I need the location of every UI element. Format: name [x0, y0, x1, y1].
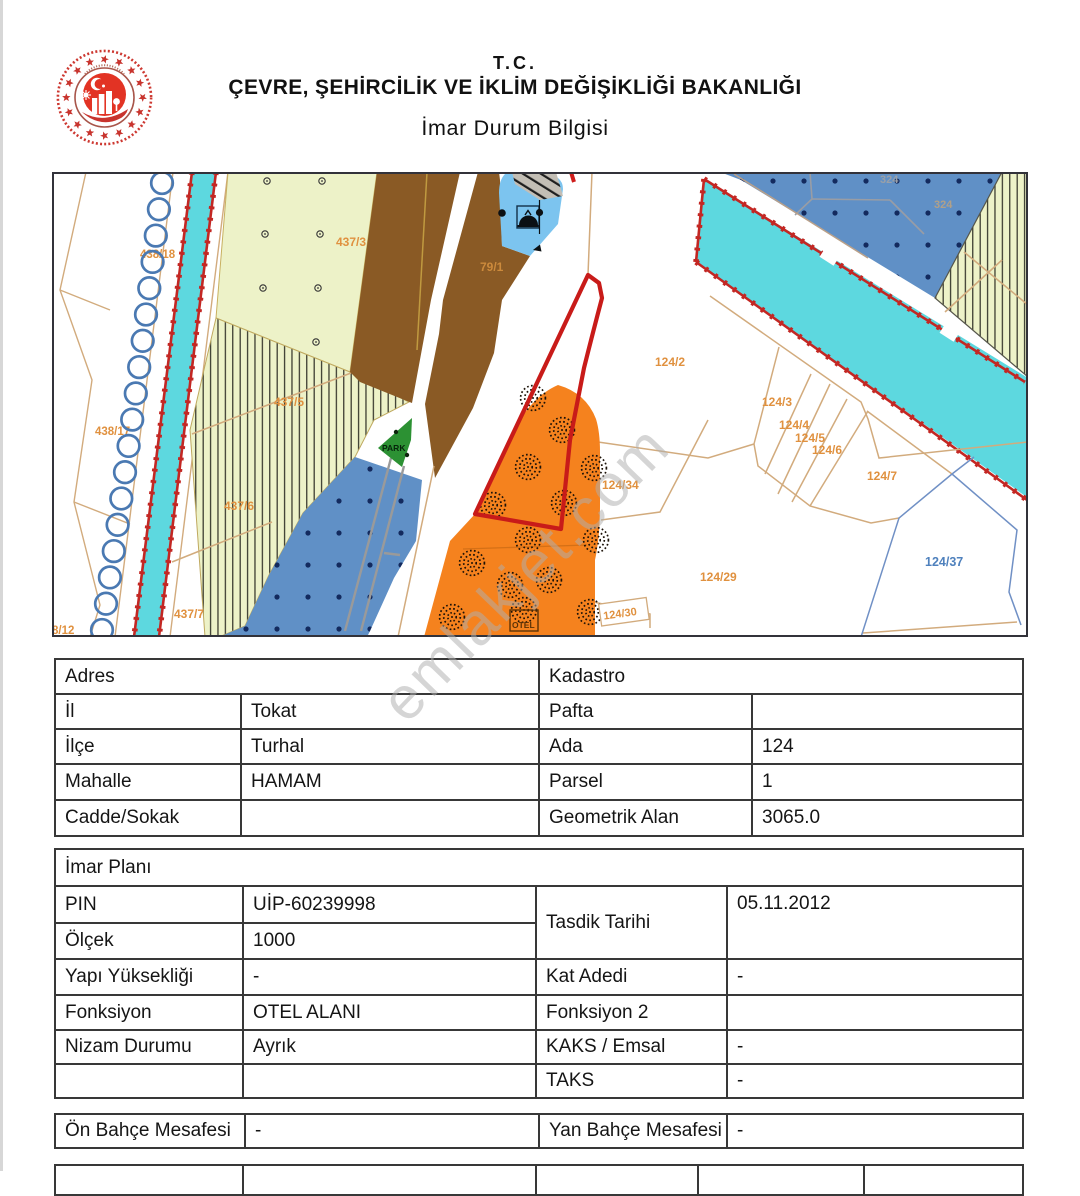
svg-text:124/3: 124/3: [762, 395, 792, 409]
svg-text:124/29: 124/29: [700, 570, 737, 584]
svg-text:437/5: 437/5: [274, 395, 304, 409]
svg-text:124/2: 124/2: [655, 355, 685, 369]
svg-text:124/4: 124/4: [779, 418, 809, 432]
svg-text:79/1: 79/1: [480, 260, 504, 274]
svg-text:324: 324: [880, 174, 899, 186]
svg-text:437/7: 437/7: [174, 607, 204, 621]
svg-text:437/6: 437/6: [224, 499, 254, 513]
svg-text:324: 324: [934, 199, 953, 211]
svg-text:124/37: 124/37: [925, 555, 963, 569]
svg-text:124/7: 124/7: [867, 469, 897, 483]
svg-text:PARK: PARK: [382, 443, 406, 453]
svg-text:437/3: 437/3: [336, 235, 366, 249]
svg-text:124/6: 124/6: [812, 443, 842, 457]
